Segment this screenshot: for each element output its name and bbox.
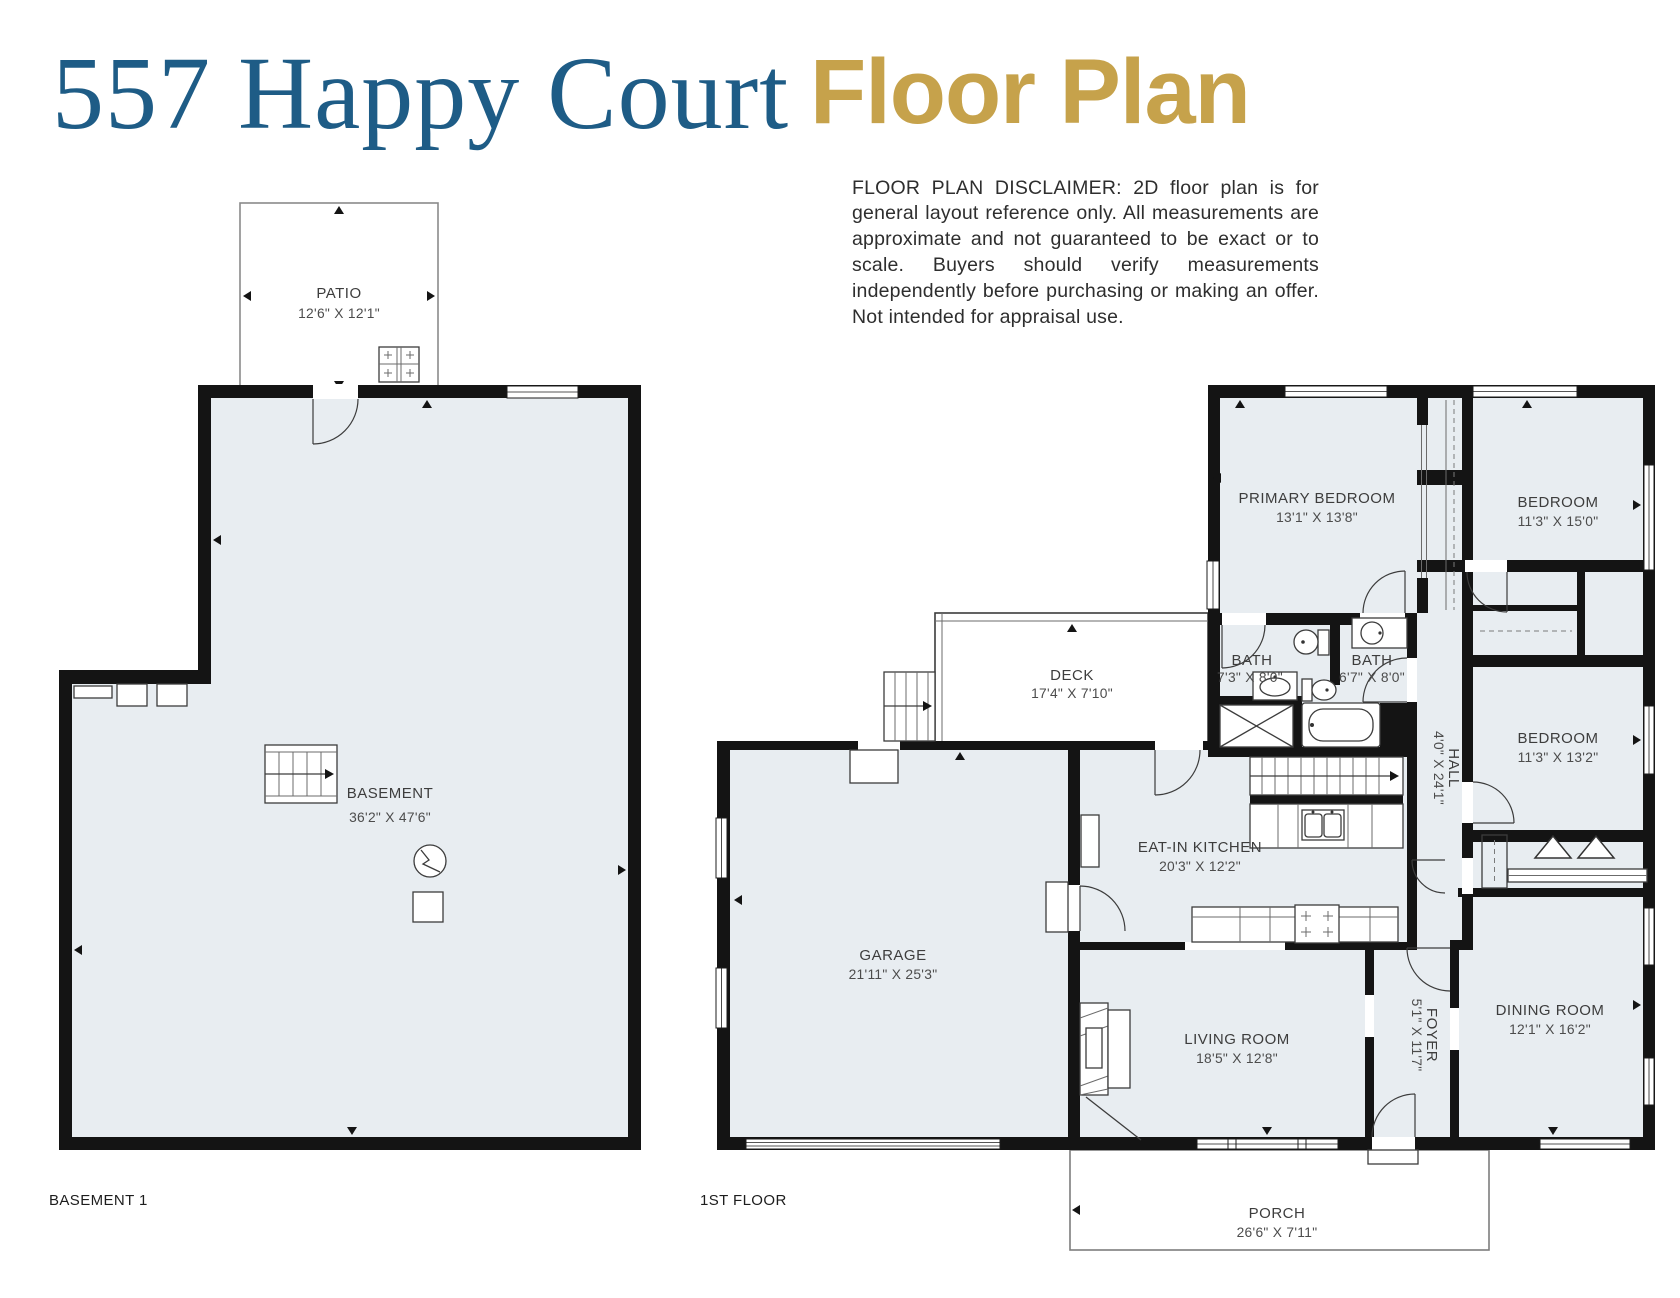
room-dims-kitchen: 20'3" X 12'2" [1159,859,1241,874]
room-dims-foyer: 5'1" X 11'7" [1409,999,1424,1072]
room-dims-primary-bedroom: 13'1" X 13'8" [1276,510,1358,525]
front-stoop [1368,1150,1418,1164]
room-label-porch: PORCH [1249,1205,1306,1222]
room-dims-bedroom-top: 11'3" X 15'0" [1518,514,1599,529]
room-dims-basement: 36'2" X 47'6" [349,810,431,825]
room-label-bath-left: BATH [1232,652,1273,669]
stove-icon [1295,905,1339,943]
room-dims-porch: 26'6" X 7'11" [1237,1225,1318,1240]
room-label-bath-right: BATH [1352,652,1393,669]
deck-landing [850,750,898,783]
room-dims-hall: 4'0" X 24'1" [1431,731,1446,805]
room-label-kitchen: EAT-IN KITCHEN [1138,839,1262,856]
support-post-icon [413,892,443,922]
deck-stairs-icon [884,672,935,741]
garage-step [1046,882,1068,932]
basement-plan: PATIO 12'6" X 12'1" [49,203,641,1209]
basement-room: BASEMENT 36'2" X 47'6" [59,384,641,1150]
pump-icon [414,845,446,877]
room-dims-bedroom-mid: 11'3" X 13'2" [1518,750,1599,765]
basement-window [507,386,578,398]
room-dims-deck: 17'4" X 7'10" [1031,686,1113,701]
floor-plan-canvas: PATIO 12'6" X 12'1" [0,0,1680,1298]
patio-table-icon [379,347,419,382]
room-label-foyer: FOYER [1423,1008,1440,1062]
room-dims-living: 18'5" X 12'8" [1196,1051,1278,1066]
room-dims-bath-left: 7'3" X 8'0" [1217,670,1283,685]
room-dims-bath-right: 6'7" X 8'0" [1339,670,1405,685]
room-dims-patio: 12'6" X 12'1" [298,306,380,321]
room-label-bedroom-top: BEDROOM [1517,494,1598,511]
floor-plan-page: 557 Happy Court Floor Plan FLOOR PLAN DI… [0,0,1680,1298]
patio: PATIO 12'6" X 12'1" [240,203,438,392]
room-dims-garage: 21'11" X 25'3" [849,967,938,982]
room-label-basement: BASEMENT [347,785,434,802]
first-floor-plan: PRIMARY BEDROOM 13'1" X 13'8" BEDROOM 11… [700,385,1655,1250]
room-label-bedroom-mid: BEDROOM [1517,730,1598,747]
room-label-patio: PATIO [316,285,361,302]
room-label-garage: GARAGE [859,947,926,964]
floor-label-basement: BASEMENT 1 [49,1192,148,1209]
room-label-deck: DECK [1050,667,1094,684]
refrigerator-icon [1081,815,1099,867]
basement-stairs-icon [265,745,337,803]
room-label-living: LIVING ROOM [1184,1031,1290,1048]
room-label-hall: HALL [1445,748,1462,788]
room-label-primary-bedroom: PRIMARY BEDROOM [1239,490,1396,507]
floor-label-first: 1ST FLOOR [700,1192,787,1209]
room-dims-dining: 12'1" X 16'2" [1509,1022,1591,1037]
room-label-dining: DINING ROOM [1496,1002,1605,1019]
